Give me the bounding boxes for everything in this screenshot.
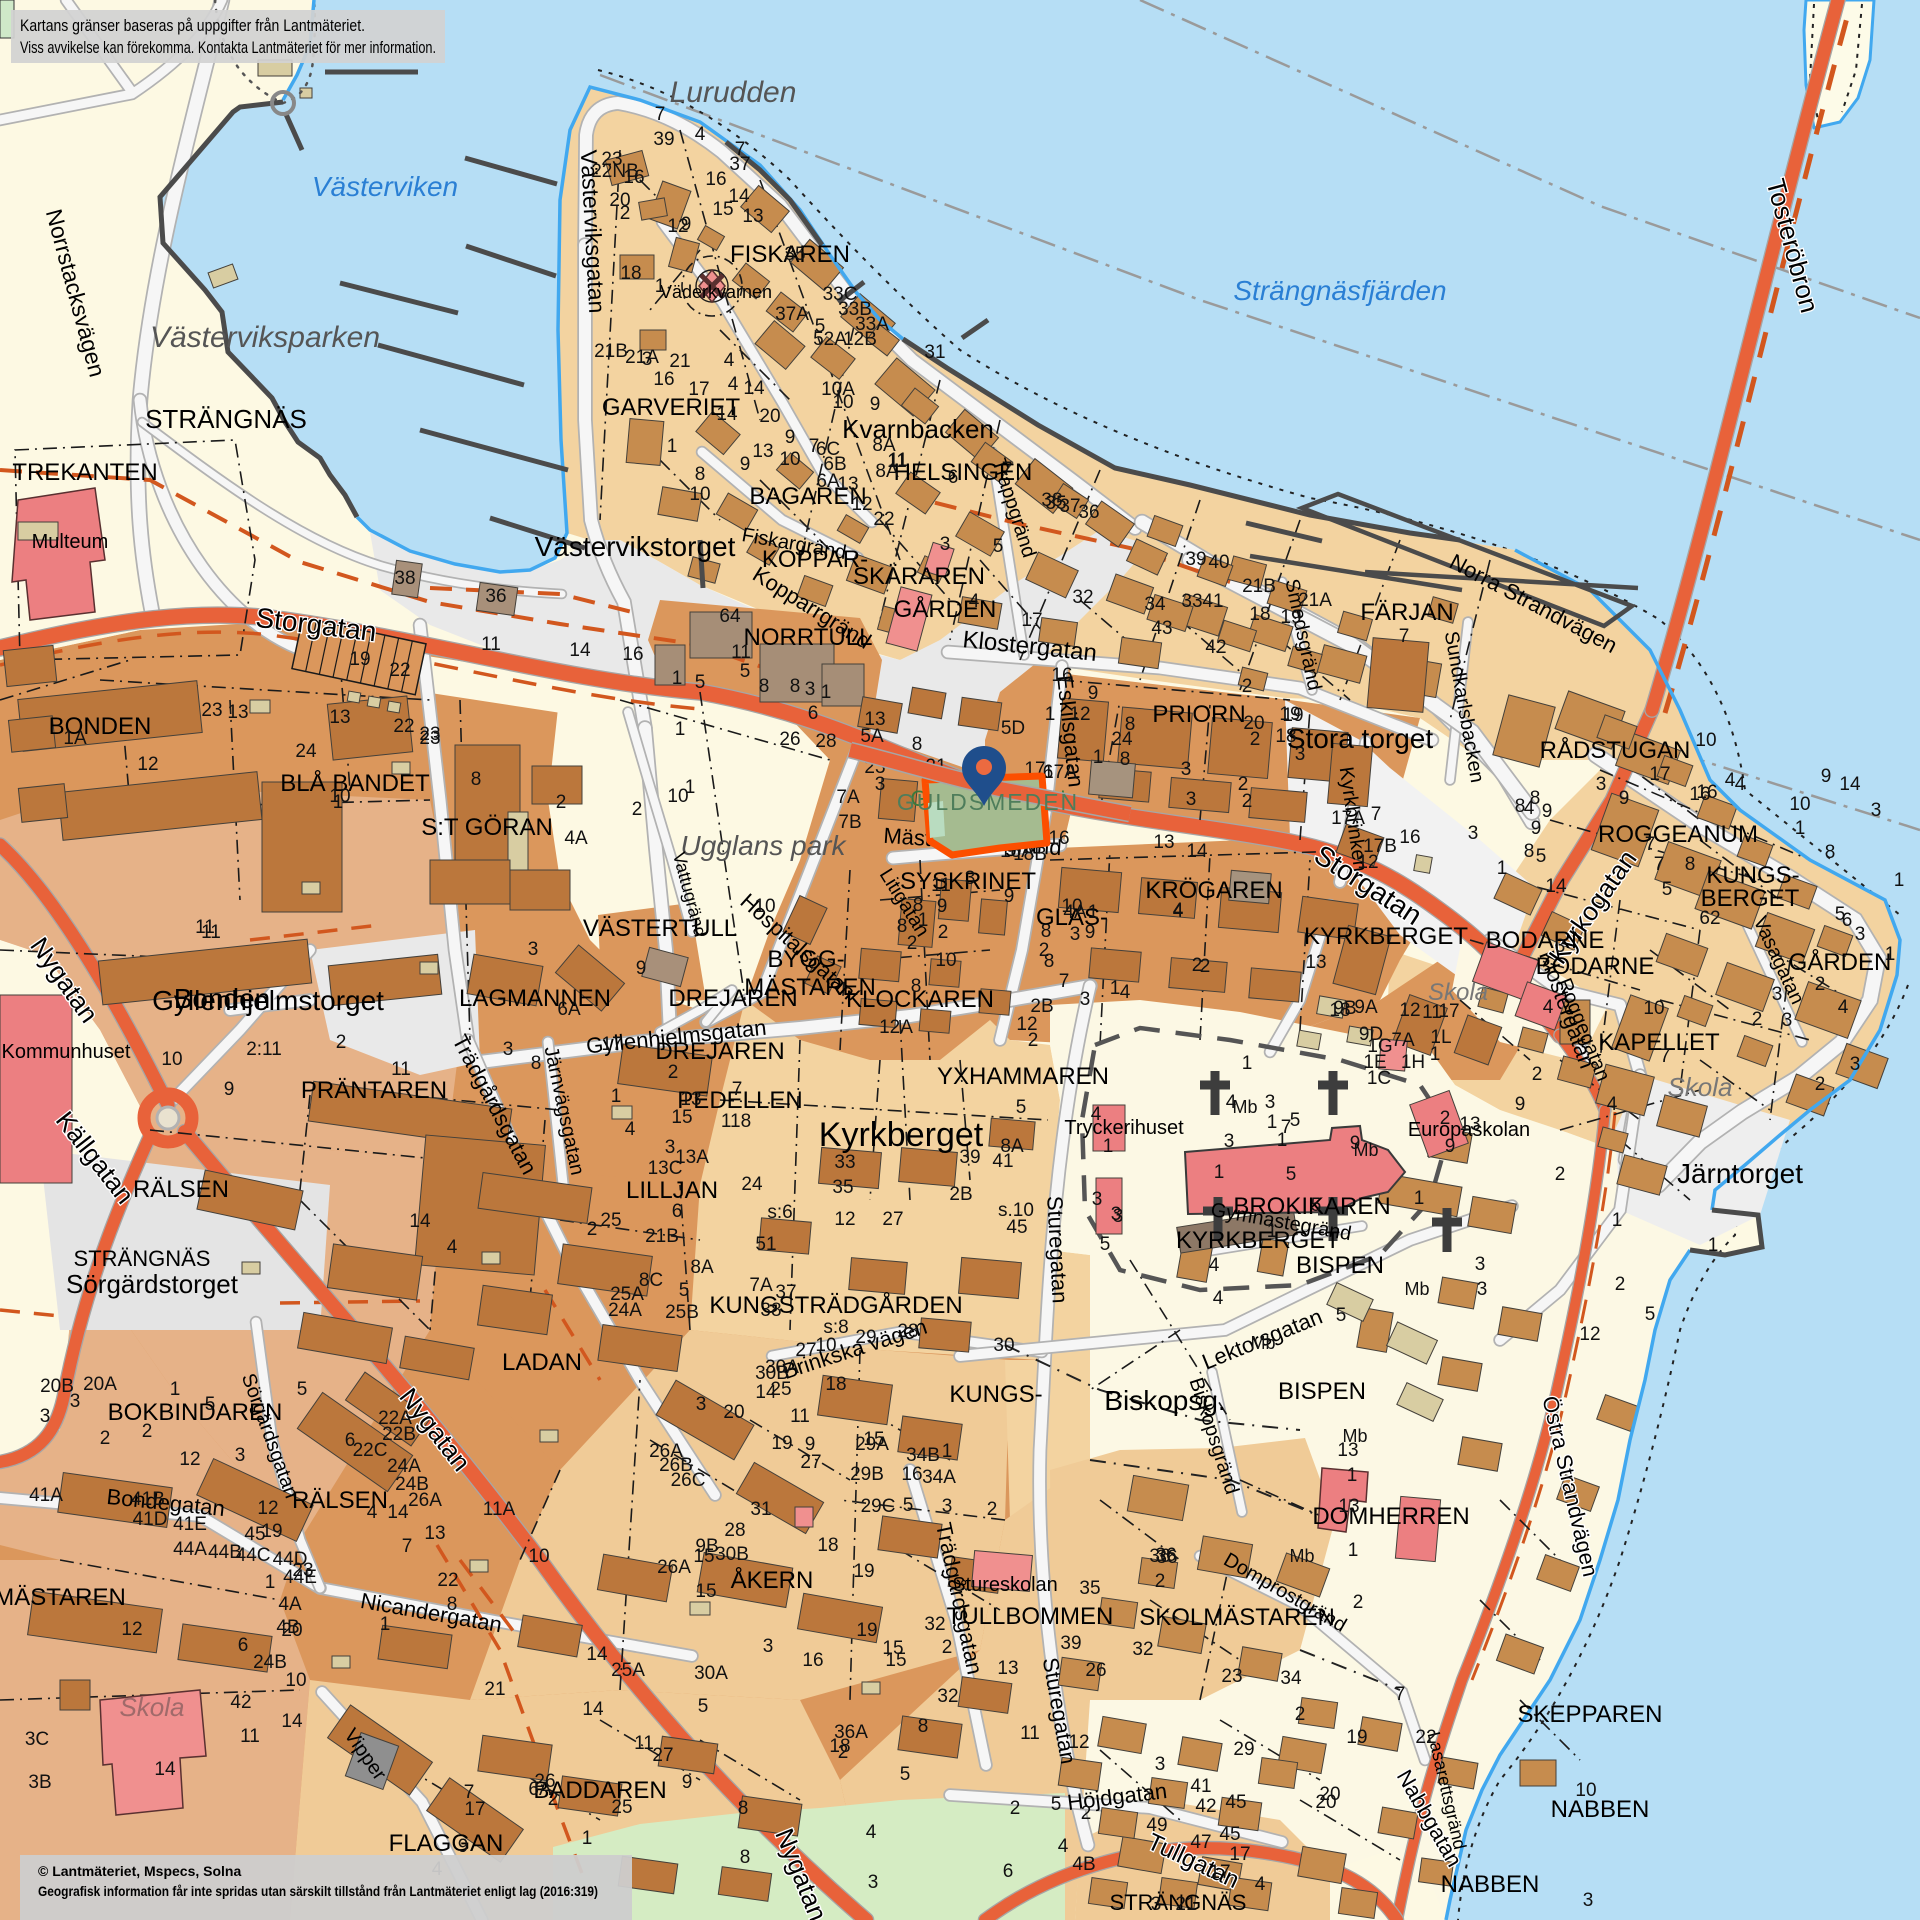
- svg-text:41A: 41A: [29, 1485, 63, 1506]
- svg-text:14: 14: [716, 404, 738, 425]
- svg-text:1: 1: [265, 1572, 276, 1593]
- svg-text:44A: 44A: [173, 1539, 207, 1560]
- svg-text:32: 32: [937, 1686, 958, 1707]
- svg-text:26: 26: [1085, 1660, 1106, 1681]
- svg-text:34: 34: [1280, 1668, 1302, 1689]
- svg-text:Skola: Skola: [119, 1692, 184, 1722]
- svg-text:7: 7: [655, 104, 666, 125]
- svg-text:12: 12: [121, 1619, 142, 1640]
- svg-text:10: 10: [1575, 1780, 1596, 1801]
- svg-text:21A: 21A: [625, 347, 659, 368]
- svg-text:14: 14: [1186, 841, 1208, 862]
- svg-text:42: 42: [1205, 637, 1226, 658]
- svg-text:12: 12: [1399, 1000, 1420, 1021]
- svg-text:5: 5: [1016, 1097, 1027, 1118]
- svg-text:31: 31: [924, 342, 945, 363]
- svg-text:3: 3: [1070, 924, 1081, 945]
- svg-text:1: 1: [667, 436, 678, 457]
- svg-text:5: 5: [1290, 1110, 1301, 1131]
- svg-text:16: 16: [653, 369, 674, 390]
- svg-text:12: 12: [1068, 1732, 1089, 1753]
- svg-text:21B: 21B: [1242, 576, 1276, 597]
- svg-text:1: 1: [1348, 1540, 1359, 1561]
- svg-text:Tryckerihuset: Tryckerihuset: [1064, 1117, 1184, 1139]
- svg-text:9: 9: [1350, 1133, 1361, 1154]
- svg-text:Sörgärdstorget: Sörgärdstorget: [66, 1269, 239, 1299]
- svg-text:35: 35: [832, 1177, 853, 1198]
- svg-text:13: 13: [1305, 952, 1326, 973]
- svg-text:s:6: s:6: [767, 1202, 792, 1223]
- svg-text:3: 3: [1295, 744, 1306, 765]
- svg-text:9: 9: [1619, 788, 1630, 809]
- svg-text:23: 23: [419, 728, 440, 749]
- svg-text:FÄRJAN: FÄRJAN: [1360, 599, 1453, 626]
- svg-text:STRÄNGNÄS: STRÄNGNÄS: [74, 1246, 211, 1271]
- svg-text:2: 2: [1250, 729, 1261, 750]
- svg-text:3: 3: [665, 1137, 676, 1158]
- svg-text:2B: 2B: [949, 1184, 972, 1205]
- svg-text:YXHAMMAREN: YXHAMMAREN: [937, 1063, 1109, 1090]
- svg-text:62: 62: [1699, 908, 1720, 929]
- svg-text:Skola: Skola: [1667, 1072, 1732, 1102]
- svg-text:13: 13: [742, 206, 763, 227]
- svg-text:4: 4: [1543, 997, 1554, 1018]
- svg-text:KYRKBERGET: KYRKBERGET: [1176, 1227, 1340, 1254]
- svg-text:4: 4: [969, 591, 980, 612]
- svg-text:45: 45: [1225, 1792, 1246, 1813]
- svg-text:BYGG-: BYGG-: [767, 946, 844, 973]
- svg-text:LADAN: LADAN: [502, 1349, 582, 1376]
- svg-text:SKEPPAREN: SKEPPAREN: [1518, 1701, 1663, 1728]
- svg-text:36: 36: [1149, 1546, 1170, 1567]
- svg-text:s.10: s.10: [998, 1200, 1034, 1221]
- svg-text:4A: 4A: [564, 828, 588, 849]
- svg-text:2: 2: [1081, 1803, 1092, 1824]
- svg-text:9: 9: [937, 896, 948, 917]
- svg-text:1: 1: [1045, 704, 1056, 725]
- svg-text:42: 42: [1195, 1796, 1216, 1817]
- svg-text:8: 8: [1524, 841, 1535, 862]
- svg-text:25B: 25B: [665, 1302, 699, 1323]
- svg-text:3: 3: [1092, 1189, 1103, 1210]
- svg-text:7A: 7A: [749, 1275, 773, 1296]
- svg-text:18: 18: [825, 1374, 846, 1395]
- svg-text:13: 13: [752, 441, 773, 462]
- svg-text:5: 5: [815, 316, 826, 337]
- svg-text:16: 16: [802, 1650, 823, 1671]
- svg-text:33: 33: [1181, 591, 1202, 612]
- svg-text:Väderkvarnen: Väderkvarnen: [660, 282, 772, 302]
- svg-text:4: 4: [1091, 1104, 1102, 1125]
- svg-text:8: 8: [1825, 842, 1836, 863]
- svg-text:9: 9: [1542, 801, 1553, 822]
- svg-text:KRÖGAREN: KRÖGAREN: [1145, 877, 1282, 904]
- svg-text:TREKANTEN: TREKANTEN: [12, 459, 157, 486]
- svg-text:MÄSTAREN: MÄSTAREN: [0, 1584, 126, 1611]
- svg-text:17: 17: [601, 1034, 622, 1055]
- svg-text:31: 31: [750, 1499, 771, 1520]
- svg-text:1: 1: [1885, 944, 1896, 965]
- svg-text:34: 34: [1144, 594, 1166, 615]
- svg-text:3: 3: [528, 939, 539, 960]
- svg-text:41E: 41E: [173, 1514, 207, 1535]
- svg-text:3: 3: [235, 1445, 246, 1466]
- svg-text:7: 7: [1371, 804, 1382, 825]
- svg-text:1: 1: [170, 1379, 181, 1400]
- svg-text:PRIORN: PRIORN: [1152, 701, 1245, 728]
- svg-text:2: 2: [1028, 1030, 1039, 1051]
- svg-text:24B: 24B: [253, 1652, 287, 1673]
- svg-text:32: 32: [1072, 587, 1093, 608]
- svg-text:8: 8: [912, 734, 923, 755]
- svg-text:36: 36: [1078, 502, 1099, 523]
- svg-text:3: 3: [1596, 774, 1607, 795]
- svg-text:44C: 44C: [236, 1545, 271, 1566]
- svg-text:4: 4: [1213, 1288, 1224, 1309]
- svg-text:8: 8: [695, 464, 706, 485]
- svg-text:GÅRDEN: GÅRDEN: [1789, 948, 1892, 976]
- svg-text:34A: 34A: [922, 1467, 956, 1488]
- svg-text:4: 4: [1173, 900, 1184, 921]
- svg-text:5: 5: [1100, 1234, 1111, 1255]
- svg-text:RÄLSEN: RÄLSEN: [133, 1176, 229, 1203]
- svg-text:16: 16: [623, 167, 644, 188]
- svg-text:2: 2: [938, 922, 949, 943]
- svg-text:2: 2: [838, 1742, 849, 1763]
- svg-text:3: 3: [1871, 800, 1882, 821]
- svg-text:16: 16: [1051, 665, 1072, 686]
- svg-text:4: 4: [1120, 982, 1131, 1003]
- svg-text:11: 11: [201, 922, 221, 943]
- svg-text:14: 14: [1545, 876, 1567, 897]
- svg-text:3: 3: [1850, 1054, 1861, 1075]
- svg-text:5: 5: [205, 1394, 216, 1415]
- svg-text:37: 37: [729, 154, 750, 175]
- svg-text:1: 1: [685, 777, 696, 798]
- svg-text:22: 22: [873, 509, 894, 530]
- svg-text:13: 13: [837, 474, 858, 495]
- svg-text:1A: 1A: [63, 728, 87, 749]
- svg-text:1: 1: [1267, 1112, 1278, 1133]
- svg-text:22: 22: [393, 716, 414, 737]
- svg-text:47: 47: [1190, 1832, 1211, 1853]
- svg-text:7: 7: [402, 1536, 413, 1557]
- svg-text:1: 1: [675, 719, 686, 740]
- svg-text:49: 49: [1146, 1815, 1167, 1836]
- svg-text:7: 7: [1395, 1684, 1406, 1705]
- svg-text:19: 19: [856, 1620, 877, 1641]
- svg-text:4: 4: [367, 1502, 378, 1523]
- svg-text:17A: 17A: [1331, 808, 1365, 829]
- svg-text:4: 4: [1735, 774, 1746, 795]
- svg-text:SKÄRAREN: SKÄRAREN: [853, 563, 985, 590]
- svg-text:1: 1: [1612, 1210, 1623, 1231]
- svg-text:2: 2: [1440, 1108, 1451, 1129]
- svg-text:© Lantmäteriet, Mspecs, Solna: © Lantmäteriet, Mspecs, Solna: [38, 1863, 241, 1879]
- svg-text:Bonden: Bonden: [174, 983, 271, 1014]
- svg-text:Mb: Mb: [1289, 1546, 1314, 1566]
- svg-text:20: 20: [759, 406, 780, 427]
- svg-text:9: 9: [785, 427, 796, 448]
- svg-text:9: 9: [1515, 1094, 1526, 1115]
- svg-text:3: 3: [868, 1872, 879, 1893]
- svg-text:33: 33: [834, 1152, 855, 1173]
- svg-text:25: 25: [611, 1797, 632, 1818]
- svg-text:10: 10: [754, 896, 775, 917]
- svg-text:11: 11: [1422, 1002, 1442, 1023]
- svg-text:2: 2: [1155, 1571, 1166, 1592]
- svg-text:Västervikstorget: Västervikstorget: [535, 531, 736, 562]
- svg-text:17: 17: [1021, 610, 1042, 631]
- svg-text:3: 3: [875, 774, 886, 795]
- svg-text:28: 28: [897, 1321, 918, 1342]
- svg-text:4B: 4B: [276, 1617, 299, 1638]
- svg-text:13: 13: [1338, 1496, 1359, 1517]
- svg-text:12: 12: [257, 1498, 278, 1519]
- svg-text:1: 1: [918, 910, 929, 931]
- svg-text:5: 5: [297, 1379, 308, 1400]
- svg-text:1: 1: [380, 1614, 391, 1635]
- svg-text:10: 10: [815, 1335, 836, 1356]
- svg-text:21: 21: [484, 1679, 505, 1700]
- svg-text:24A: 24A: [608, 1300, 642, 1321]
- svg-text:2: 2: [1815, 974, 1826, 995]
- svg-text:MÄSTAREN: MÄSTAREN: [744, 974, 876, 1001]
- svg-text:S:T GÖRAN: S:T GÖRAN: [421, 814, 553, 841]
- svg-text:7: 7: [1660, 1046, 1671, 1067]
- svg-text:LAGMANNEN: LAGMANNEN: [459, 985, 611, 1012]
- svg-text:1: 1: [821, 682, 832, 703]
- svg-text:6C: 6C: [816, 439, 840, 460]
- svg-text:Mb: Mb: [1250, 1333, 1275, 1353]
- svg-text:4: 4: [447, 1237, 458, 1258]
- svg-text:BOKBINDAREN: BOKBINDAREN: [108, 1399, 283, 1426]
- svg-text:20: 20: [609, 190, 630, 211]
- svg-text:5: 5: [1336, 1305, 1347, 1326]
- svg-text:12B: 12B: [843, 329, 877, 350]
- svg-text:8: 8: [1044, 951, 1055, 972]
- svg-text:13: 13: [424, 1523, 445, 1544]
- svg-text:28: 28: [815, 731, 836, 752]
- svg-text:14: 14: [586, 1644, 608, 1665]
- svg-text:24: 24: [295, 741, 317, 762]
- svg-text:2: 2: [1242, 791, 1253, 812]
- svg-text:13: 13: [1337, 1440, 1358, 1461]
- svg-text:12A: 12A: [879, 1017, 913, 1038]
- svg-text:17: 17: [464, 1799, 485, 1820]
- svg-text:Strängnäsfjärden: Strängnäsfjärden: [1233, 275, 1446, 306]
- svg-text:8: 8: [1120, 749, 1131, 770]
- svg-text:8: 8: [918, 1716, 929, 1737]
- svg-text:5: 5: [900, 1764, 911, 1785]
- svg-text:18: 18: [1275, 726, 1296, 747]
- svg-text:NABBEN: NABBEN: [1441, 1871, 1540, 1898]
- svg-text:11: 11: [391, 1059, 411, 1080]
- svg-text:38: 38: [760, 1300, 781, 1321]
- svg-text:41D: 41D: [133, 1509, 168, 1530]
- svg-text:25: 25: [600, 1210, 621, 1231]
- svg-text:Kartans gränser baseras på upp: Kartans gränser baseras på uppgifter frå…: [20, 16, 365, 35]
- svg-text:2: 2: [556, 792, 567, 813]
- svg-text:13C: 13C: [648, 1158, 683, 1179]
- svg-text:11: 11: [790, 1406, 810, 1427]
- svg-text:10: 10: [528, 1546, 549, 1567]
- svg-text:21: 21: [1175, 1894, 1196, 1915]
- svg-text:2: 2: [336, 1032, 347, 1053]
- svg-text:22: 22: [1415, 1727, 1436, 1748]
- svg-text:3: 3: [763, 1636, 774, 1657]
- svg-text:20B: 20B: [40, 1376, 74, 1397]
- svg-text:17: 17: [1209, 1862, 1230, 1883]
- svg-text:RÅDSTUGAN: RÅDSTUGAN: [1540, 736, 1691, 764]
- svg-text:10: 10: [329, 786, 350, 807]
- svg-text:5: 5: [695, 672, 706, 693]
- svg-text:8: 8: [1125, 714, 1136, 735]
- svg-text:Lurudden: Lurudden: [670, 76, 797, 109]
- svg-text:Kommunhuset: Kommunhuset: [2, 1041, 131, 1063]
- svg-text:41B: 41B: [131, 1489, 165, 1510]
- svg-text:Kvarnbacken: Kvarnbacken: [842, 414, 994, 444]
- svg-text:1: 1: [1110, 978, 1121, 999]
- svg-text:3: 3: [1475, 1254, 1486, 1275]
- svg-text:6: 6: [808, 703, 819, 724]
- svg-text:9: 9: [1445, 1136, 1456, 1157]
- svg-text:2: 2: [668, 1062, 679, 1083]
- svg-text:Ugglans park: Ugglans park: [681, 830, 848, 861]
- svg-text:5: 5: [1835, 904, 1846, 925]
- svg-text:KYRKBERGET: KYRKBERGET: [1304, 923, 1468, 950]
- svg-text:23: 23: [201, 700, 222, 721]
- svg-text:DOMHERREN: DOMHERREN: [1312, 1503, 1469, 1530]
- svg-text:11: 11: [888, 450, 908, 471]
- svg-text:8: 8: [790, 676, 801, 697]
- svg-text:4: 4: [1209, 1255, 1220, 1276]
- svg-text:1: 1: [611, 1086, 622, 1107]
- svg-text:24: 24: [741, 1174, 763, 1195]
- svg-text:9: 9: [1085, 922, 1096, 943]
- svg-text:27: 27: [882, 1209, 903, 1230]
- svg-text:8: 8: [759, 676, 770, 697]
- svg-text:4: 4: [1255, 1874, 1266, 1895]
- svg-text:5: 5: [1311, 1195, 1322, 1216]
- svg-text:9B: 9B: [1333, 998, 1356, 1019]
- svg-text:3B: 3B: [28, 1772, 51, 1793]
- svg-text:64: 64: [719, 606, 741, 627]
- svg-text:8: 8: [1041, 921, 1052, 942]
- svg-text:11: 11: [634, 1733, 654, 1754]
- svg-text:6: 6: [345, 1430, 356, 1451]
- svg-text:19: 19: [853, 1561, 874, 1582]
- svg-text:8: 8: [447, 1594, 458, 1615]
- svg-text:BISPEN: BISPEN: [1296, 1252, 1384, 1279]
- svg-text:9: 9: [870, 394, 881, 415]
- svg-text:VÄSTERTULL: VÄSTERTULL: [583, 915, 737, 942]
- svg-text:Västerviksparken: Västerviksparken: [150, 321, 380, 354]
- svg-text:KUNGS-: KUNGS-: [949, 1381, 1042, 1408]
- svg-text:11: 11: [731, 642, 751, 663]
- svg-text:1H: 1H: [1401, 1052, 1425, 1073]
- svg-text:6: 6: [672, 1201, 683, 1222]
- svg-text:1: 1: [582, 1828, 593, 1849]
- svg-text:3: 3: [1772, 984, 1783, 1005]
- svg-text:39: 39: [959, 1147, 980, 1168]
- svg-text:10: 10: [779, 449, 800, 470]
- svg-text:3: 3: [1477, 1279, 1488, 1300]
- svg-text:16: 16: [1399, 827, 1420, 848]
- svg-text:8: 8: [740, 1847, 751, 1868]
- svg-text:30A: 30A: [694, 1663, 728, 1684]
- svg-text:PRÄNTAREN: PRÄNTAREN: [301, 1077, 447, 1104]
- svg-text:Viss avvikelse kan förekomma.: Viss avvikelse kan förekomma. Kontakta L…: [20, 38, 436, 57]
- svg-text:3: 3: [1555, 936, 1566, 957]
- svg-text:5: 5: [1536, 846, 1547, 867]
- svg-text:9: 9: [1004, 886, 1015, 907]
- svg-text:37: 37: [1059, 496, 1080, 517]
- svg-text:4B: 4B: [1072, 1854, 1095, 1875]
- svg-text:7A: 7A: [836, 787, 860, 808]
- svg-text:10: 10: [285, 1670, 306, 1691]
- svg-text:7: 7: [1059, 971, 1070, 992]
- svg-text:3: 3: [696, 1394, 707, 1415]
- svg-text:9: 9: [636, 958, 647, 979]
- svg-text:3: 3: [1113, 1206, 1124, 1227]
- svg-text:1: 1: [1214, 1162, 1225, 1183]
- svg-text:8A: 8A: [690, 1257, 714, 1278]
- svg-text:29B: 29B: [850, 1464, 884, 1485]
- svg-text:18: 18: [817, 1535, 838, 1556]
- svg-text:39: 39: [1185, 549, 1206, 570]
- svg-text:11: 11: [1020, 1723, 1040, 1744]
- svg-text:4: 4: [866, 1822, 877, 1843]
- svg-text:18: 18: [1249, 604, 1270, 625]
- svg-text:10: 10: [689, 484, 710, 505]
- svg-text:9: 9: [1088, 683, 1099, 704]
- svg-text:8: 8: [1685, 854, 1696, 875]
- svg-text:17: 17: [1649, 764, 1670, 785]
- svg-text:13: 13: [329, 707, 350, 728]
- svg-text:Mb: Mb: [1404, 1279, 1429, 1299]
- svg-text:5D: 5D: [1001, 718, 1025, 739]
- svg-text:1C: 1C: [1367, 1068, 1391, 1089]
- svg-text:2: 2: [100, 1428, 111, 1449]
- svg-text:16: 16: [901, 1464, 922, 1485]
- svg-text:3C: 3C: [25, 1729, 49, 1750]
- svg-text:45: 45: [1219, 1824, 1240, 1845]
- svg-text:1: 1: [672, 668, 683, 689]
- svg-text:10: 10: [161, 1049, 182, 1070]
- svg-text:10: 10: [935, 950, 956, 971]
- svg-text:14: 14: [387, 1502, 409, 1523]
- svg-text:13: 13: [227, 702, 248, 723]
- svg-text:12: 12: [834, 1209, 855, 1230]
- svg-text:3: 3: [1181, 759, 1192, 780]
- svg-text:27: 27: [800, 1452, 821, 1473]
- svg-text:30B: 30B: [715, 1544, 749, 1565]
- svg-text:11: 11: [931, 875, 951, 896]
- svg-text:29: 29: [855, 1327, 876, 1348]
- svg-text:14: 14: [281, 1711, 303, 1732]
- svg-text:6: 6: [1003, 1861, 1014, 1882]
- svg-text:2: 2: [1200, 956, 1211, 977]
- svg-text:5: 5: [740, 661, 751, 682]
- svg-text:2: 2: [1555, 1164, 1566, 1185]
- svg-text:Stora torget: Stora torget: [1287, 723, 1434, 754]
- svg-text:5: 5: [993, 536, 1004, 557]
- svg-text:3: 3: [1155, 1754, 1166, 1775]
- svg-text:25A: 25A: [611, 1660, 645, 1681]
- svg-text:5: 5: [698, 1696, 709, 1717]
- svg-text:2: 2: [907, 933, 918, 954]
